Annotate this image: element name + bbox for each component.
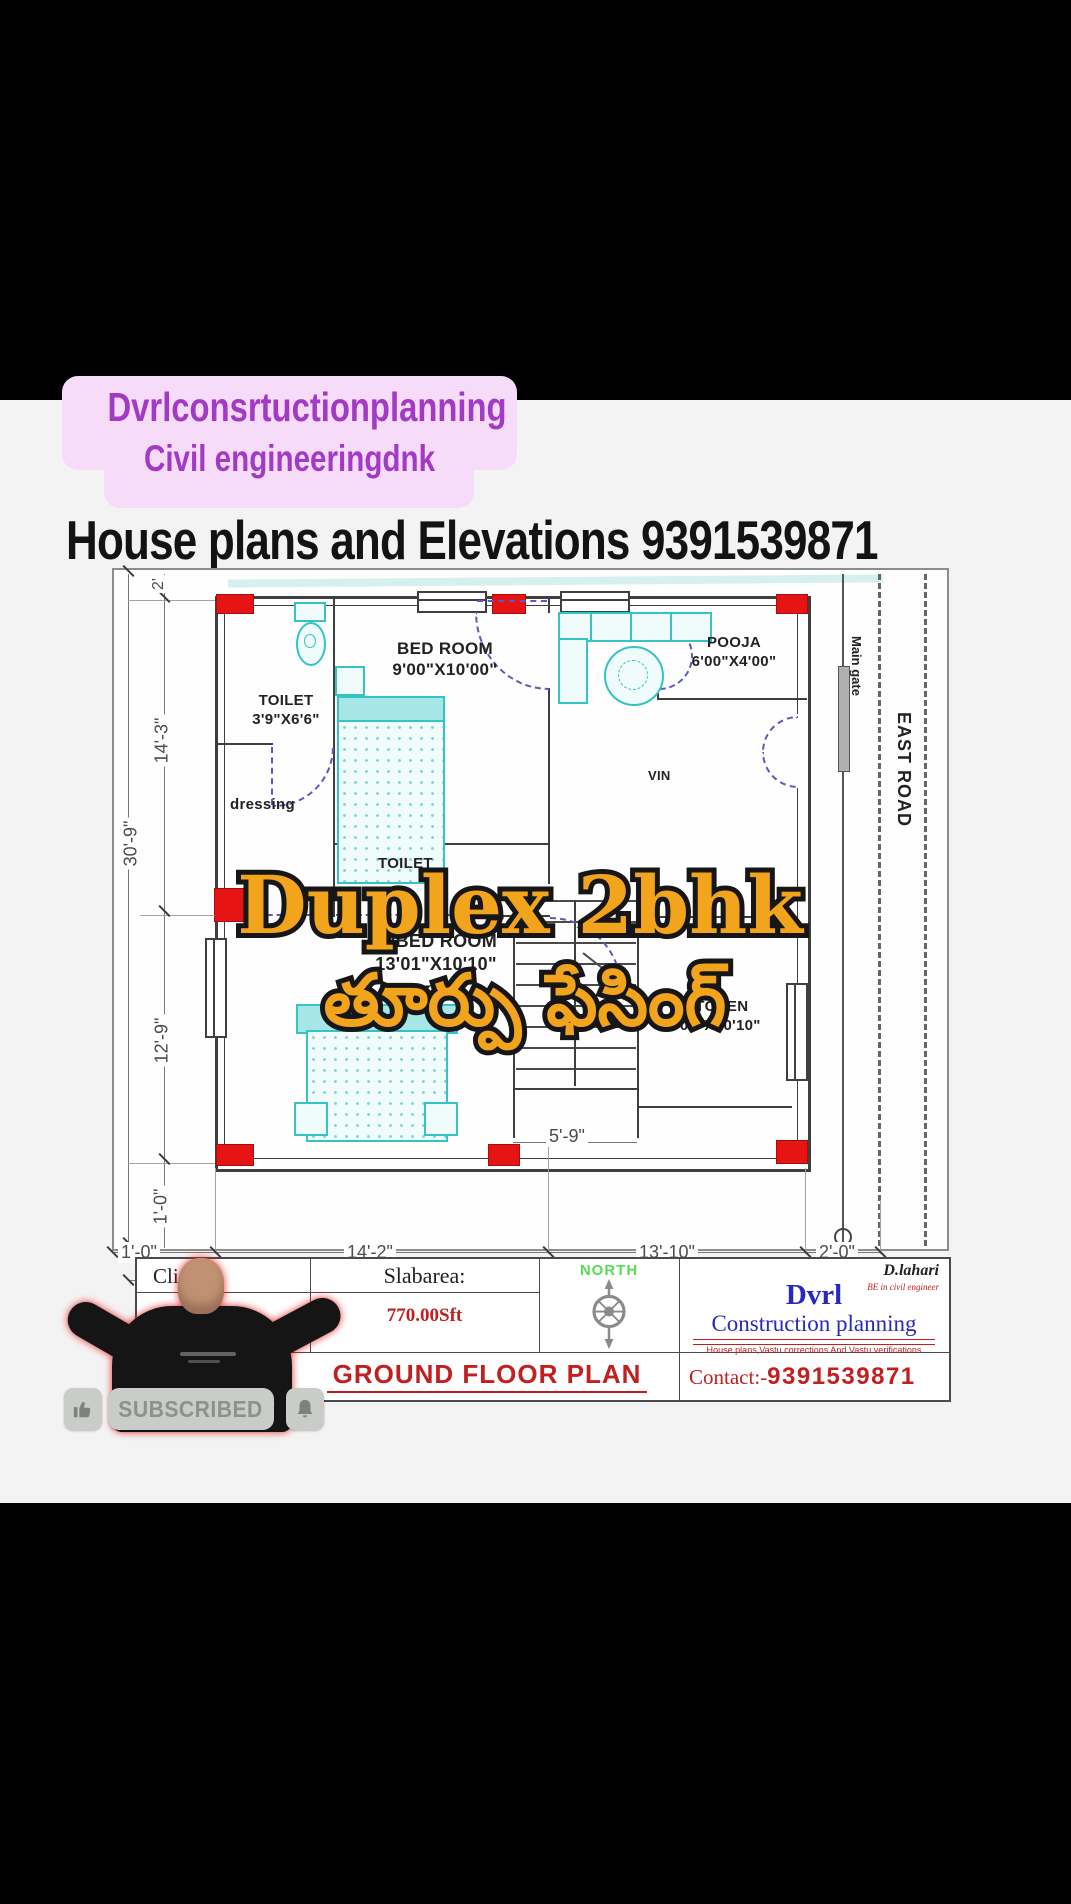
room-name: BED ROOM <box>350 638 540 659</box>
page-title: House plans and Elevations 9391539871 <box>66 508 878 572</box>
overlay-subtitle: తూర్పు ఫేసింగ్ తూర్పు ఫేసింగ్ <box>195 958 855 1060</box>
column-marker <box>488 1144 520 1166</box>
dim-extension <box>128 600 215 601</box>
column-marker <box>776 594 808 614</box>
top-letterbox <box>0 0 1071 400</box>
dim-left-2: 12'-9" <box>151 1015 172 1067</box>
pooja-wall-bottom <box>657 698 807 700</box>
dim-left-0: 2' <box>150 575 168 593</box>
room-label-pooja: POOJA 6'00"X4'00" <box>666 634 802 672</box>
subscribed-label: SUBSCRIBED <box>119 1396 264 1423</box>
dim-extension <box>880 1200 881 1254</box>
living-label-fragment: VIN <box>648 768 671 784</box>
dim-chain-line <box>128 574 129 1248</box>
contact-cell: Contact:-9391539871 <box>689 1363 916 1391</box>
wall-segment <box>548 688 550 884</box>
main-gate-label: Main gate <box>849 636 864 696</box>
toilet-tank <box>294 602 326 622</box>
compass-rose-icon <box>583 1279 635 1349</box>
dim-left-3: 1'-0" <box>150 1186 171 1228</box>
north-label: NORTH <box>539 1262 679 1279</box>
plan-title: GROUND FLOOR PLAN <box>327 1359 648 1393</box>
presenter-shirt-print <box>188 1360 220 1363</box>
room-label-toilet: TOILET 3'9"X6'6" <box>226 692 346 730</box>
notification-bell-button[interactable] <box>286 1388 324 1430</box>
round-table-detail <box>618 660 648 690</box>
road-edge-line <box>924 574 927 1246</box>
bell-icon <box>294 1398 316 1420</box>
dim-chain-line <box>112 1252 882 1253</box>
wall-segment <box>548 599 550 613</box>
subscribed-button[interactable]: SUBSCRIBED <box>108 1388 274 1430</box>
channel-name-line2: Civil engineeringdnk <box>108 438 472 480</box>
room-size: 6'00"X4'00" <box>666 653 802 672</box>
room-name: TOILET <box>226 692 346 711</box>
room-label-bedroom: BED ROOM 9'00"X10'00" <box>350 638 540 681</box>
firm-line2: Construction planning <box>679 1311 949 1337</box>
dim-extension <box>128 1163 215 1164</box>
channel-name-line1: Dvrlconsrtuctionplanning <box>108 384 472 431</box>
room-size: 3'9"X6'6" <box>226 711 346 730</box>
video-frame: Dvrlconsrtuctionplanning Civil engineeri… <box>0 0 1071 1904</box>
dim-extension <box>548 1140 549 1254</box>
wall-segment <box>215 743 273 745</box>
dim-extension <box>215 1168 216 1254</box>
firm-tagline: House plans,Vastu corrections And Vastu … <box>686 1345 943 1356</box>
designer-name: D.lahari <box>883 1262 939 1280</box>
nightstand <box>294 1102 328 1136</box>
presenter-shirt-print <box>180 1352 236 1356</box>
overlay-title: Duplex 2bhk Duplex 2bhk <box>200 858 840 952</box>
like-button[interactable] <box>64 1388 102 1430</box>
contact-label: Contact:- <box>689 1365 767 1389</box>
dressing-label: dressing <box>230 796 295 815</box>
column-marker <box>216 594 254 614</box>
dim-extension <box>805 1168 806 1254</box>
thumbs-up-icon <box>72 1398 94 1420</box>
firm-name: Dvrl <box>679 1279 949 1312</box>
dim-left-1: 14'-3" <box>151 715 172 767</box>
kitchen-wall-bottom <box>639 1106 792 1108</box>
sofa-arm <box>558 638 588 704</box>
dim-stair-width: 5'-9" <box>546 1126 588 1147</box>
toilet-bowl-detail <box>304 634 316 648</box>
column-marker <box>492 594 526 614</box>
room-name: POOJA <box>666 634 802 653</box>
bottom-letterbox <box>0 1503 1071 1904</box>
dim-left-total: 30'-9" <box>120 818 141 870</box>
stair-landing-line <box>515 1088 637 1090</box>
window <box>560 591 630 613</box>
column-marker <box>216 1144 254 1166</box>
road-edge-line <box>878 574 881 1246</box>
compound-wall <box>842 574 844 668</box>
column-marker <box>776 1140 808 1164</box>
nightstand <box>424 1102 458 1136</box>
door-leaf <box>477 600 547 602</box>
presenter-head <box>178 1258 224 1314</box>
window <box>417 591 487 613</box>
east-road-label: EAST ROAD <box>893 712 914 827</box>
contact-number: 9391539871 <box>767 1363 915 1390</box>
room-size: 9'00"X10'00" <box>350 659 540 680</box>
